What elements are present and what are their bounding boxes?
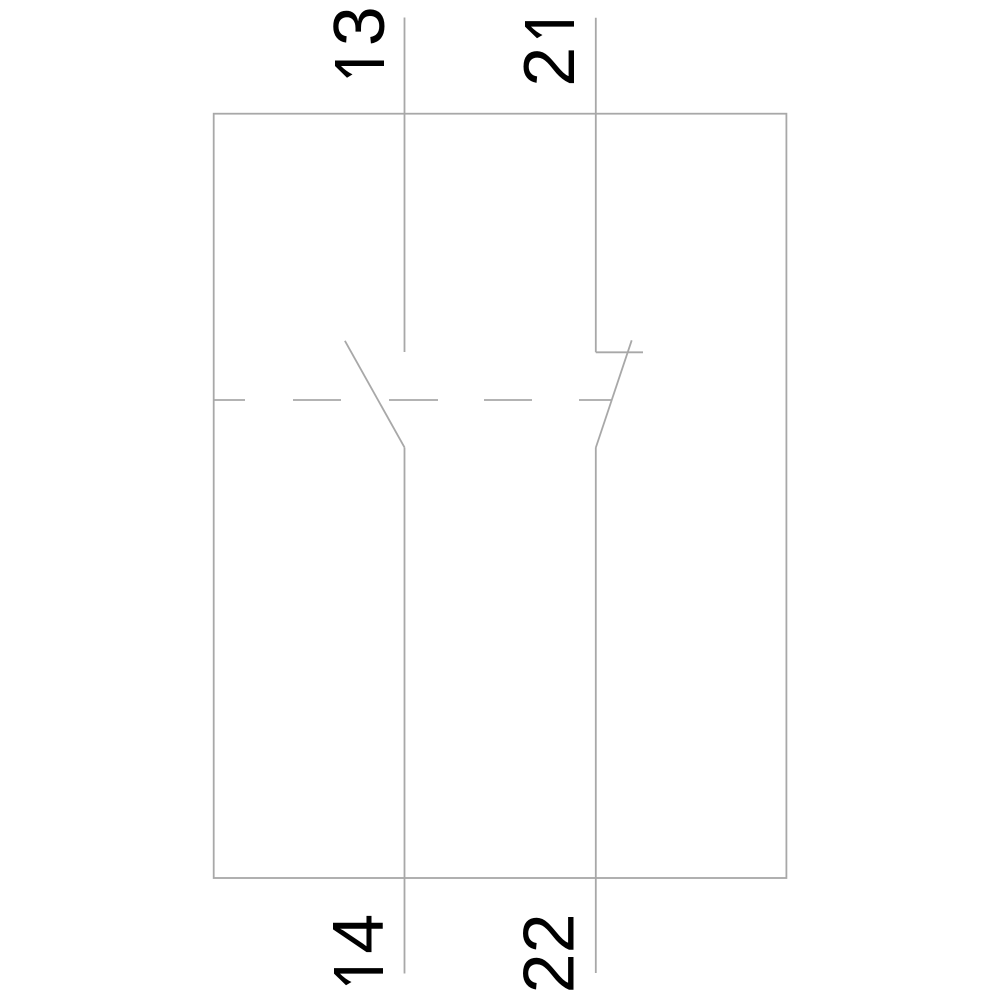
svg-text:2: 2 (510, 47, 590, 87)
svg-text:3: 3 (320, 6, 400, 46)
svg-text:22: 22 (510, 913, 590, 993)
svg-text:4: 4 (319, 914, 399, 954)
